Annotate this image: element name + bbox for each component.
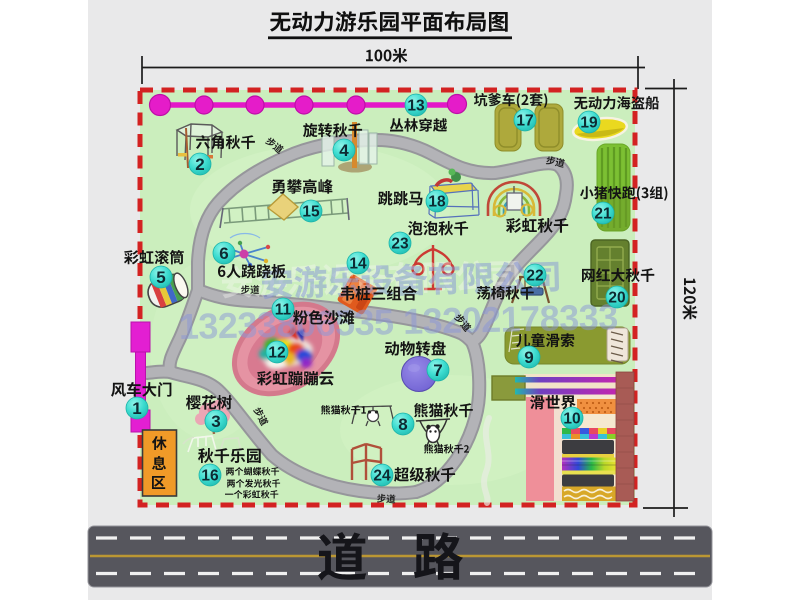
svg-text:13: 13: [407, 98, 425, 115]
svg-text:9: 9: [524, 348, 533, 367]
svg-text:5: 5: [156, 268, 165, 287]
svg-text:15: 15: [302, 204, 320, 221]
svg-text:22: 22: [526, 268, 543, 285]
svg-text:18: 18: [428, 194, 446, 211]
svg-text:6: 6: [219, 244, 228, 263]
svg-text:2: 2: [195, 155, 204, 174]
svg-text:23: 23: [391, 236, 409, 253]
svg-text:19: 19: [580, 115, 598, 132]
svg-text:16: 16: [201, 468, 219, 485]
svg-text:8: 8: [398, 415, 407, 434]
svg-text:11: 11: [275, 302, 292, 319]
svg-text:20: 20: [608, 290, 625, 307]
svg-text:17: 17: [516, 113, 533, 130]
svg-text:7: 7: [433, 361, 442, 380]
svg-text:3: 3: [211, 412, 220, 431]
svg-text:21: 21: [594, 206, 612, 223]
svg-text:1: 1: [132, 399, 141, 418]
svg-text:14: 14: [349, 256, 367, 273]
svg-text:12: 12: [268, 345, 285, 362]
svg-text:24: 24: [373, 468, 391, 485]
svg-text:4: 4: [339, 141, 349, 160]
svg-text:10: 10: [563, 411, 580, 428]
